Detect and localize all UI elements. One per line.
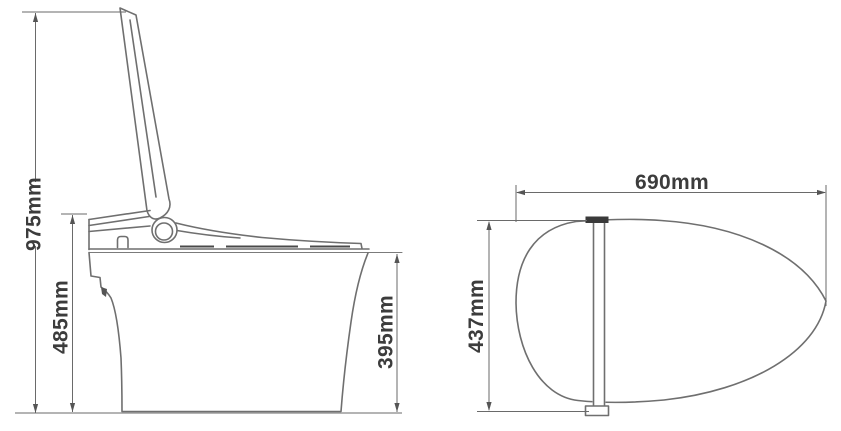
width-label: 437mm — [465, 279, 488, 353]
toilet-deck — [89, 249, 402, 253]
dim-seat-height: 485mm — [50, 214, 88, 412]
arrow-down-icon — [33, 404, 38, 413]
dimension-diagram: 975mm 485mm 395mm — [0, 0, 841, 431]
arrow-up-icon — [33, 13, 38, 22]
lid-outline — [120, 8, 170, 219]
toilet-base — [89, 253, 368, 412]
hinge-cap-dark — [586, 217, 609, 224]
hinge-foot — [586, 406, 609, 416]
arrow-left-icon — [516, 190, 525, 195]
hinge-band-mask — [593, 222, 606, 407]
diagram-canvas: 975mm 485mm 395mm — [0, 0, 841, 431]
seat-height-label: 485mm — [50, 280, 73, 354]
lid-top-outline — [516, 219, 826, 402]
arrow-down-icon — [394, 403, 399, 412]
arrow-up-icon — [486, 221, 491, 230]
toilet-seat — [176, 223, 362, 249]
toilet-lid-raised — [120, 8, 170, 219]
top-view: 690mm 437mm — [465, 171, 826, 416]
seat-back-housing — [89, 211, 150, 250]
housing-bumper-notch — [118, 237, 129, 248]
base-outline — [89, 253, 368, 412]
bowl-height-label: 395mm — [375, 295, 398, 369]
dim-bowl-height: 395mm — [375, 254, 400, 412]
arrow-right-icon — [817, 190, 826, 195]
dim-total-height: 975mm — [22, 12, 126, 413]
water-inlet-detail — [101, 287, 107, 297]
housing-lower-seam — [89, 226, 150, 232]
seat-top-edge — [176, 223, 362, 249]
arrow-up-icon — [394, 254, 399, 263]
lid-hinge — [152, 218, 177, 243]
dim-width: 437mm — [465, 221, 589, 412]
arrow-down-icon — [70, 403, 75, 412]
arrow-down-icon — [486, 402, 491, 411]
total-height-label: 975mm — [23, 177, 46, 251]
arrow-up-icon — [70, 215, 75, 224]
length-label: 690mm — [635, 171, 709, 194]
hinge-band — [586, 217, 609, 416]
side-view: 975mm 485mm 395mm — [15, 8, 402, 413]
dim-length: 690mm — [516, 171, 826, 306]
hinge-inner-circle — [156, 223, 173, 240]
